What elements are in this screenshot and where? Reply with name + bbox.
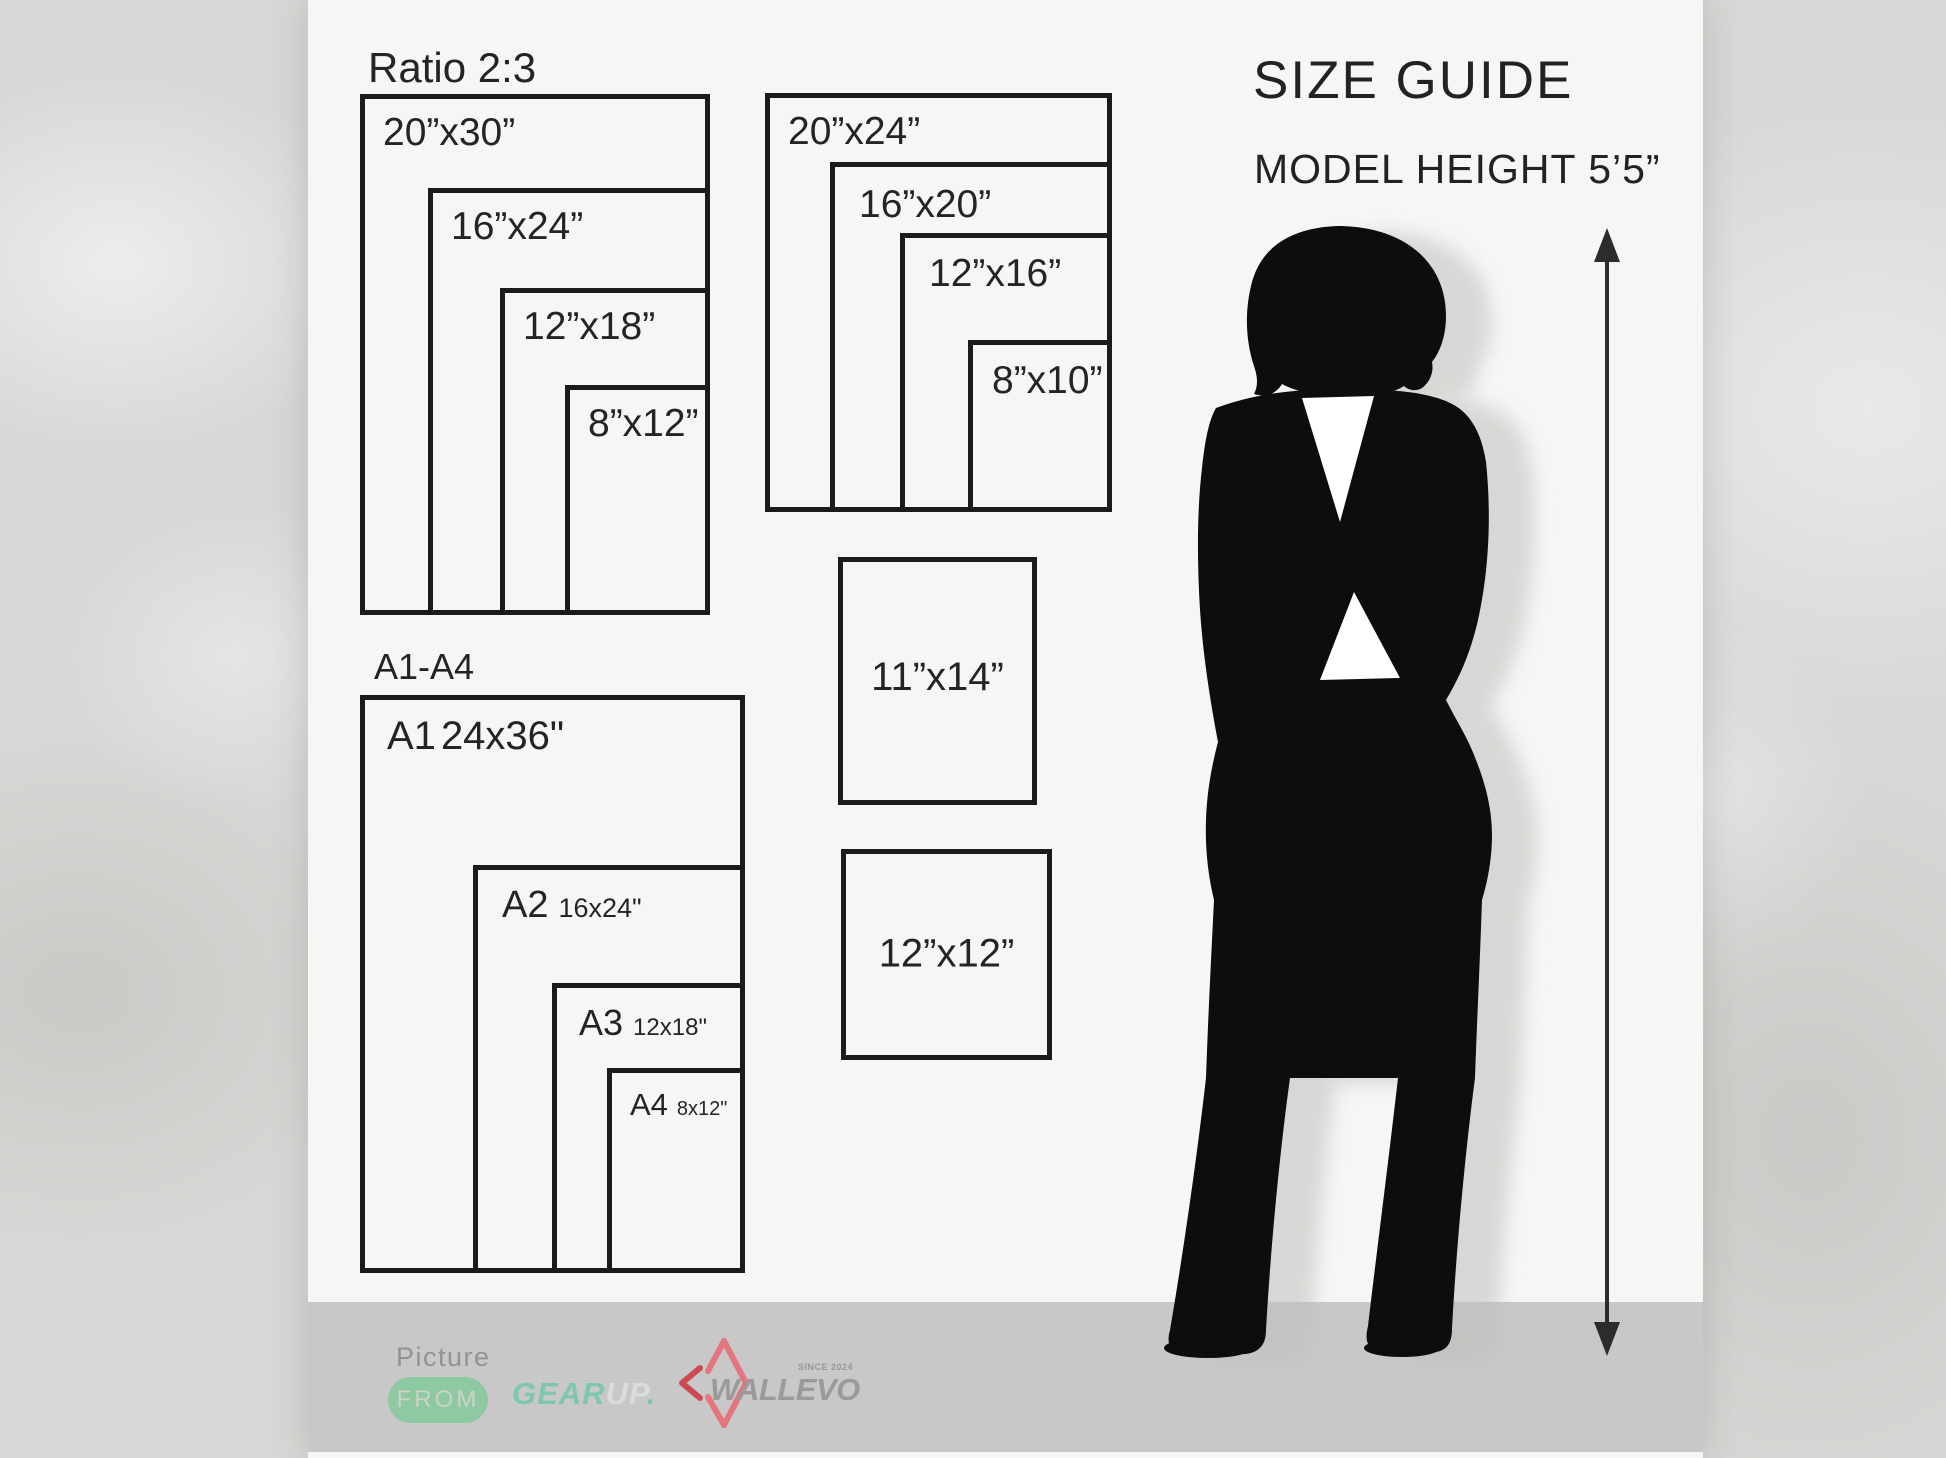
model-silhouette — [1164, 226, 1492, 1358]
poster-canvas: Ratio 2:3 20”x30” 16”x24” 12”x18” 8”x12”… — [308, 0, 1703, 1458]
model-figure — [308, 0, 1703, 1458]
height-arrow — [1594, 228, 1620, 1356]
size-guide-poster: Ratio 2:3 20”x30” 16”x24” 12”x18” 8”x12”… — [0, 0, 1946, 1458]
